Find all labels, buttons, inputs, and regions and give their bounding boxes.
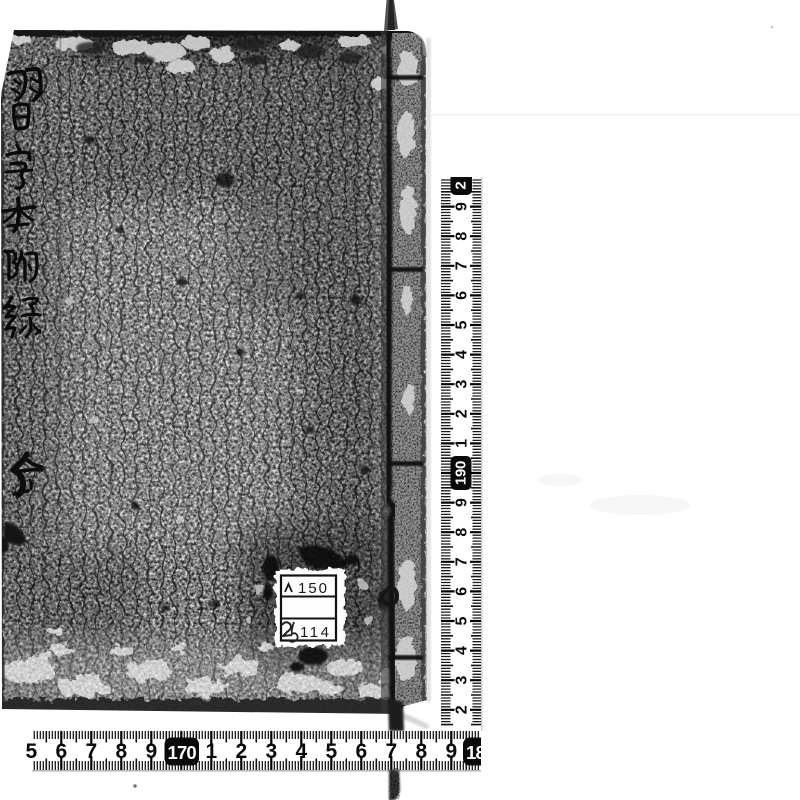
svg-text:2: 2 bbox=[453, 409, 470, 418]
svg-text:5: 5 bbox=[25, 740, 37, 763]
svg-text:7: 7 bbox=[453, 261, 470, 270]
svg-text:1: 1 bbox=[453, 439, 470, 448]
svg-text:5: 5 bbox=[453, 616, 470, 625]
svg-text:3: 3 bbox=[453, 676, 470, 685]
svg-text:6: 6 bbox=[355, 740, 367, 763]
svg-text:6: 6 bbox=[55, 740, 67, 763]
svg-text:190: 190 bbox=[453, 461, 470, 485]
svg-text:9: 9 bbox=[453, 202, 470, 211]
svg-text:4: 4 bbox=[295, 740, 307, 763]
svg-text:7: 7 bbox=[385, 740, 397, 763]
svg-text:5: 5 bbox=[453, 320, 470, 329]
svg-text:7: 7 bbox=[453, 557, 470, 566]
svg-text:4: 4 bbox=[453, 646, 470, 655]
svg-text:5: 5 bbox=[325, 740, 337, 763]
svg-text:4: 4 bbox=[453, 350, 470, 359]
svg-text:2: 2 bbox=[453, 705, 470, 714]
svg-text:114: 114 bbox=[300, 624, 331, 641]
svg-text:8: 8 bbox=[415, 740, 427, 763]
svg-text:150: 150 bbox=[298, 580, 329, 597]
svg-text:170: 170 bbox=[167, 742, 196, 763]
svg-text:1: 1 bbox=[205, 740, 217, 763]
svg-text:2: 2 bbox=[235, 740, 247, 763]
svg-text:8: 8 bbox=[115, 740, 127, 763]
svg-text:9: 9 bbox=[145, 740, 157, 763]
svg-text:8: 8 bbox=[453, 232, 470, 241]
svg-text:2: 2 bbox=[453, 181, 470, 189]
svg-text:9: 9 bbox=[445, 740, 457, 763]
svg-text:3: 3 bbox=[265, 740, 277, 763]
svg-text:6: 6 bbox=[453, 291, 470, 300]
svg-text:7: 7 bbox=[85, 740, 97, 763]
svg-text:3: 3 bbox=[453, 380, 470, 389]
svg-text:9: 9 bbox=[453, 498, 470, 507]
svg-text:8: 8 bbox=[453, 528, 470, 537]
svg-text:6: 6 bbox=[453, 587, 470, 596]
